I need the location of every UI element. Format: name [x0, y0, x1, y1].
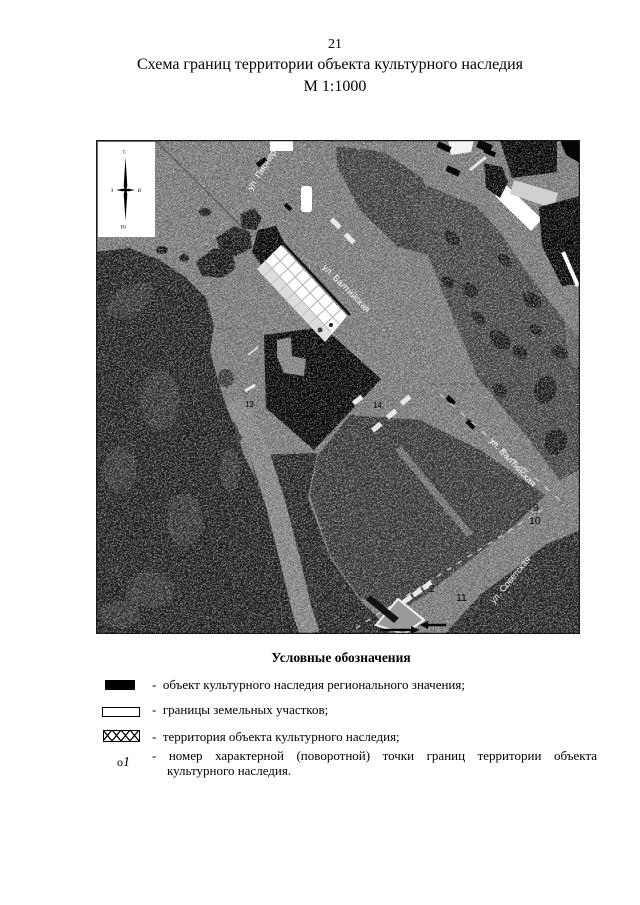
svg-text:В: В: [138, 188, 142, 194]
svg-text:11: 11: [456, 592, 467, 604]
svg-text:З: З: [111, 188, 114, 194]
svg-text:13: 13: [245, 400, 254, 409]
svg-text:10: 10: [529, 515, 541, 527]
svg-text:2: 2: [429, 583, 435, 595]
svg-text:С: С: [123, 150, 127, 156]
svg-text:Ю: Ю: [121, 225, 127, 231]
svg-text:14: 14: [373, 401, 382, 410]
svg-text:9: 9: [533, 502, 539, 514]
